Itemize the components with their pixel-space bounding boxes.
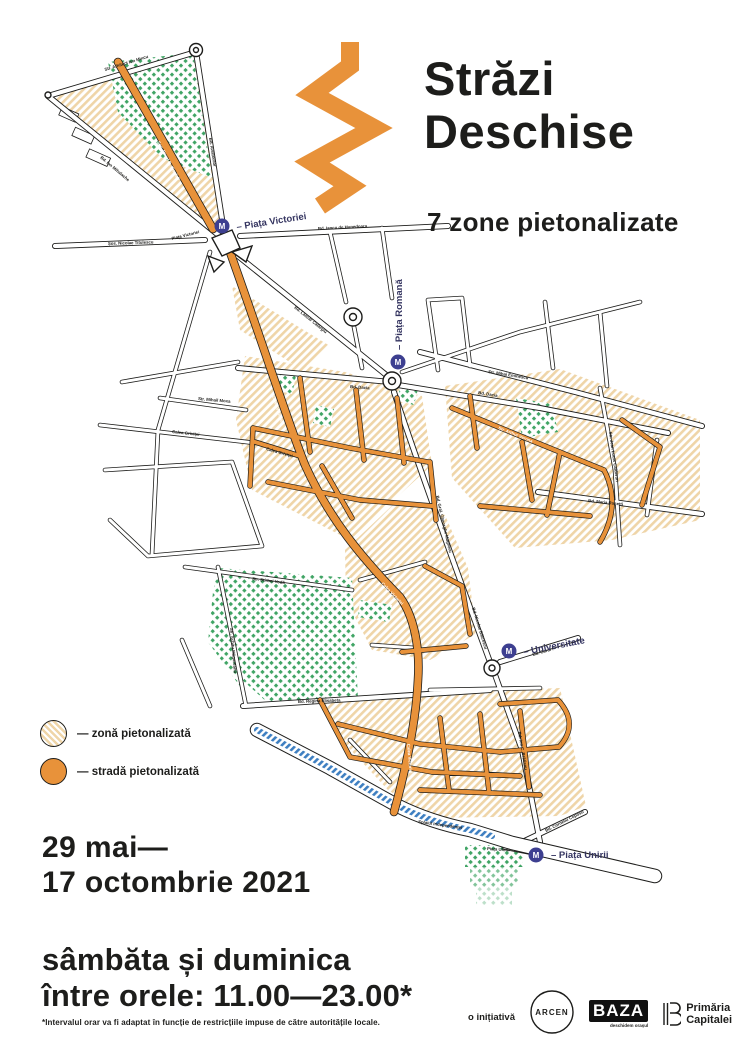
legend-zone-label: — zonă pietonalizată [77, 728, 191, 740]
primaria-line2: Capitalei [686, 1014, 732, 1026]
schedule-line1: sâmbăta și duminica [42, 942, 412, 978]
street-swatch-icon [40, 758, 67, 785]
baza-logo: BAZA deschidem orașul [589, 1000, 648, 1028]
metro-letter: M [219, 222, 226, 231]
arcen-text: ARCEN [535, 1008, 568, 1017]
metro-station-label: – Piața Romană [394, 279, 405, 350]
partner-logos: o inițiativă ARCEN BAZA deschidem orașul… [468, 970, 733, 1036]
metro-station: M– Piața Victoriei [215, 211, 308, 233]
page-title: Străzi Deschise [424, 52, 634, 158]
event-dates: 29 mai— 17 octombrie 2021 [42, 830, 311, 900]
baza-tagline: deschidem orașul [610, 1023, 648, 1028]
legend-street-row: — stradă pietonalizată [40, 758, 199, 785]
schedule-line2: între orele: 11.00—23.00* [42, 978, 412, 1014]
metro-letter: M [506, 647, 513, 656]
title-line2: Deschise [424, 105, 634, 158]
initiative-label: o inițiativă [468, 1012, 515, 1023]
metro-letter: M [395, 358, 402, 367]
baza-text: BAZA [589, 1000, 648, 1022]
dates-line2: 17 octombrie 2021 [42, 865, 311, 900]
schedule-footnote: *Intervalul orar va fi adaptat în funcți… [42, 1018, 380, 1027]
metro-station-label: – Universitate [522, 635, 585, 658]
title-line1: Străzi [424, 52, 634, 105]
metro-station-label: – Piața Unirii [551, 850, 609, 861]
strazi-deschise-logo [288, 36, 403, 214]
park-unirii-fade [465, 845, 523, 905]
primaria-line1: Primăria [686, 1002, 732, 1014]
metro-station-label: – Piața Victoriei [236, 211, 307, 233]
zone-swatch-icon [40, 720, 67, 747]
metro-station: M– Universitate [502, 635, 586, 658]
primaria-monogram-icon [661, 1001, 681, 1027]
poster: Str. Arhitect Ion MincuBd. AviatorilorȘo… [0, 0, 745, 1043]
metro-letter: M [533, 851, 540, 860]
legend-street-label: — stradă pietonalizată [77, 766, 199, 778]
primaria-logo: Primăria Capitalei [661, 1001, 732, 1027]
primaria-text: Primăria Capitalei [686, 1002, 732, 1026]
event-schedule: sâmbăta și duminica între orele: 11.00—2… [42, 942, 412, 1014]
arcen-logo: ARCEN [528, 988, 576, 1036]
zigzag-icon [312, 42, 374, 206]
legend-zone-row: — zonă pietonalizată [40, 720, 199, 747]
metro-station: M– Piața Unirii [529, 848, 609, 863]
subtitle: 7 zone pietonalizate [427, 207, 679, 238]
dates-line1: 29 mai— [42, 830, 311, 865]
map-legend: — zonă pietonalizată — stradă pietonaliz… [40, 720, 199, 785]
